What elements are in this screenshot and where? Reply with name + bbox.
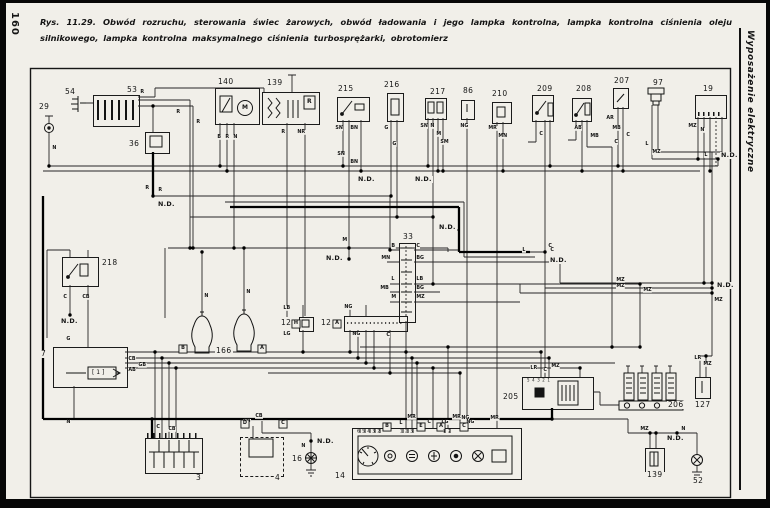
ground-16-icon [306,453,317,464]
wire-color-label: CB [168,427,176,432]
wire-color-label: MR [488,126,497,131]
label-16: 16 [291,455,303,463]
wire-color-label: NR [297,130,306,135]
label-52: 52 [692,477,704,485]
wire-color-label: G [66,337,71,342]
wire-color-label: NG [344,305,353,310]
wire-color-label: N [204,294,209,299]
pin-number-row: 5 4 3 2 1 [527,379,551,383]
symbol-glyphs [45,88,703,474]
wire-color-label: N [246,290,251,295]
ecu-block-glyph: [ 1 ] [92,370,104,376]
label-127: 127 [694,401,712,409]
connector-36-inner [150,136,162,147]
boxed-pin-label: A [258,345,267,354]
wire-color-label: BG [416,256,424,261]
wire-color-label: B [391,244,395,249]
wire-color-label: AR [606,116,614,121]
label-215: 215 [337,85,355,93]
wire-color-label: M [436,132,442,137]
ground-nd-label: N.D. [720,152,739,159]
wire-color-label: MB [380,286,389,291]
wire-color-label: MB [590,134,599,139]
boxed-pin-label: B [179,345,188,354]
pin-number-row: 6 5 4 3 2 [357,430,381,434]
wire-color-label: M [342,238,348,243]
relay-208-icon [575,103,590,116]
wire-color-label: AB [128,368,136,373]
boxed-pin-label: B [383,423,392,432]
label-14: 14 [334,472,346,480]
wire-color-label: SM [440,140,449,145]
ground-nd-label: N.D. [666,435,685,442]
boxed-pin-label: A [333,320,342,329]
wire-color-label: R [140,90,145,95]
wire-color-label: AB [574,126,582,131]
wire-color-label: NG [352,332,361,337]
wire-color-label: MZ [652,150,661,155]
wire-color-label: R [176,110,181,115]
ground-nd-label: N.D. [60,318,79,325]
wire-color-label: CB [82,295,90,300]
label-12h: 12 [280,319,292,327]
wire-color-label: MN [498,134,508,139]
warning-lamp-29-icon [45,124,54,133]
wire-color-label: LG [283,332,291,337]
label-140: 140 [217,78,235,86]
ground-nd-label: N.D. [316,438,335,445]
connector-4-inner [249,439,273,457]
ground-nd-label: N.D. [357,176,376,183]
ground-nd-label: N.D. [414,176,433,183]
label-86: 86 [462,87,474,95]
wire-color-label: G [384,126,389,131]
label-216: 216 [383,81,401,89]
wire-color-label: MB [612,126,621,131]
wire-color-label: N [301,444,306,449]
wire-color-label: BN [350,126,358,131]
switch-207-icon [617,94,624,102]
label-139b: 139 [646,471,664,479]
wire-color-label: CB [255,414,263,419]
wire-color-label: LB [416,277,424,282]
wiring-layer [0,0,770,508]
wire-color-label: R [158,188,163,193]
wire-color-label: MZ [688,124,697,129]
wire-color-label: C [626,133,630,138]
wire-color-label: R [196,120,201,125]
switch-217-inner [428,102,443,113]
wire-color-label: BG [416,286,424,291]
ground-nd-label: N.D. [716,282,735,289]
wire-color-label: L [704,153,708,158]
wire-color-label: GB [138,363,146,368]
wire-color-label: MZ [551,364,560,369]
relay-218-icon [67,264,88,278]
ground-nd-label: N.D. [549,257,568,264]
scanned-manual-page: 160 Rys. 11.29. Obwód rozruchu, sterowan… [0,0,770,508]
label-218: 218 [101,259,119,267]
sensor-139b-inner [650,452,658,466]
label-33: 33 [402,233,414,241]
ground-nd-label: N.D. [325,255,344,262]
wire-color-label: N [66,420,71,425]
wire-color-label: BN [350,160,358,165]
junction-3-grid [149,440,199,468]
glow-controller-bars [98,100,133,120]
wire-color-label: SN [420,124,428,129]
wire-color-label: N [700,128,705,133]
regulator-r-glyph: R [307,99,312,105]
wire-color-label: MN [381,256,391,261]
connector-54-icon [71,96,86,112]
boxed-pin-label: E [417,423,426,432]
wire-color-label: C [427,420,431,425]
relay-215-icon [341,101,364,115]
wire-color-label: LB [283,306,291,311]
wire-color-label: C [156,425,160,430]
charge-warning-lamp-icon [385,451,396,462]
wire-color-label: R [225,135,230,140]
wire-color-label: N [233,135,238,140]
wire-color-label: L [522,248,526,253]
wire-color-label: MR [407,415,416,420]
wire-color-label: N [430,124,435,129]
connector-210-inner [497,107,505,117]
label-205: 205 [502,393,520,401]
label-36: 36 [128,140,140,148]
label-7: 7 [40,350,47,358]
motor-m-glyph: M [242,105,248,111]
boxed-pin-label: C [460,423,469,432]
wire-color-label: B [217,135,221,140]
connector-12h-inner [302,320,309,327]
wire-color-label: MZ [640,427,649,432]
wire-color-label: C [63,295,67,300]
wire-color-label: MZ [703,362,712,367]
junction-dots [47,104,719,442]
wire-color-label: C [543,368,547,373]
wire-color-label: M [391,295,397,300]
wire-color-label: CB [128,357,136,362]
wire-color-label: MR [452,415,461,420]
wire-color-label: NG [460,124,469,129]
wire-color-label: L [399,421,403,426]
pin-number-row: 1 2 3 [400,430,413,434]
label-209: 209 [536,85,554,93]
wire-color-label: C [416,244,420,249]
wire-color-label: MZ [643,288,652,293]
label-12a: 12 [320,319,332,327]
label-166: 166 [215,347,233,355]
wire-color-label: L [391,277,395,282]
wire-color-label: C [386,333,390,338]
label-54: 54 [64,88,76,96]
boxed-pin-label: C [279,420,288,429]
boxed-pin-label: D [241,420,250,429]
oil-pressure-lamp-icon [407,451,418,462]
wire-color-label: R [145,186,150,191]
wire-color-label: LR [694,356,702,361]
instrument-panel-inner [358,428,512,474]
wire-color-label: C [550,248,554,253]
wire-color-label: MR [490,416,499,421]
wire-color-label: SN [337,152,345,157]
wire-color-label: N [52,146,57,151]
relay-209-icon [536,101,553,116]
label-139: 139 [266,79,284,87]
label-19: 19 [702,85,714,93]
label-210: 210 [491,90,509,98]
connector-33-pins [401,248,412,312]
ground-nd-label: N.D. [157,201,176,208]
label-206: 206 [667,401,685,409]
label-217: 217 [429,88,447,96]
wire-color-label: MZ [714,298,723,303]
label-3: 3 [195,474,202,482]
wire-color-label: MZ [616,278,625,283]
wire-color-label: C [614,140,618,145]
thick-wires [43,152,552,438]
warning-lamp-52-icon [692,455,703,466]
wire-color-label: N [681,427,686,432]
pin-number-row: 1 2 [443,430,451,434]
glow-timer-205-inner [535,381,578,405]
ground-nd-label: N.D. [438,224,457,231]
label-97: 97 [652,79,664,87]
wire-color-label: LR [530,366,538,371]
label-53: 53 [126,86,138,94]
wire-color-label: MZ [416,295,425,300]
wire-color-label: C [539,132,543,137]
wire-color-label: R [281,130,286,135]
wire-color-label: SN [335,126,343,131]
label-207: 207 [613,77,631,85]
boxed-pin-label: H [292,320,301,329]
sensor-216-inner [391,99,399,115]
wire-color-label: L [645,142,649,147]
wire-color-label: MZ [616,284,625,289]
label-4: 4 [274,474,281,482]
plug-97-icon [648,88,664,105]
label-29: 29 [38,103,50,111]
label-208: 208 [575,85,593,93]
wire-color-label: G [392,142,397,147]
